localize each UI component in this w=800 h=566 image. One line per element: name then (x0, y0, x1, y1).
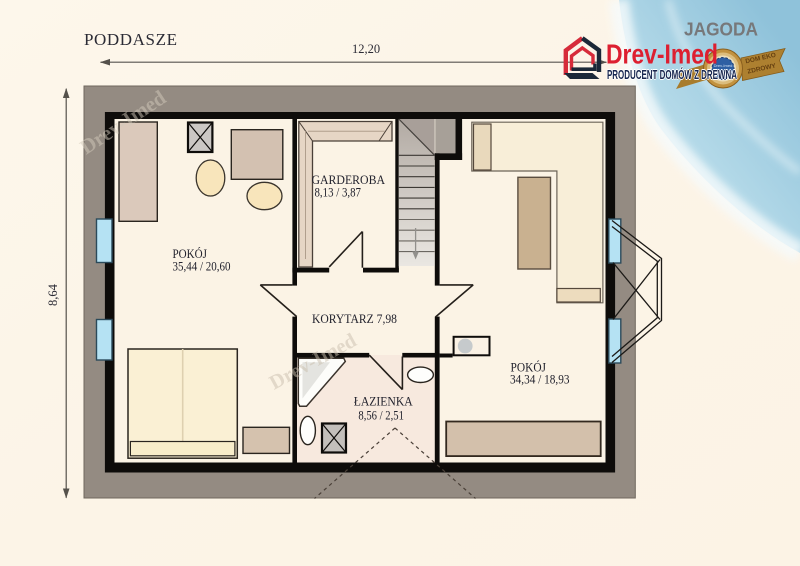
svg-text:JAGODA: JAGODA (684, 19, 758, 40)
svg-text:KORYTARZ 7,98: KORYTARZ 7,98 (312, 312, 397, 326)
svg-text:8,56 / 2,51: 8,56 / 2,51 (358, 409, 404, 423)
svg-text:Drev-Imed: Drev-Imed (606, 39, 718, 70)
svg-text:12,20: 12,20 (352, 42, 380, 56)
svg-text:34,34 / 18,93: 34,34 / 18,93 (510, 373, 570, 387)
svg-text:8,64: 8,64 (46, 283, 60, 306)
svg-text:8,13 / 3,87: 8,13 / 3,87 (315, 186, 362, 200)
svg-text:PODDASZE: PODDASZE (84, 30, 178, 49)
svg-text:ŁAZIENKA: ŁAZIENKA (354, 395, 413, 409)
svg-text:PRODUCENT DOMÓW Z DREWNA: PRODUCENT DOMÓW Z DREWNA (607, 67, 737, 82)
svg-text:35,44 / 20,60: 35,44 / 20,60 (173, 260, 231, 274)
